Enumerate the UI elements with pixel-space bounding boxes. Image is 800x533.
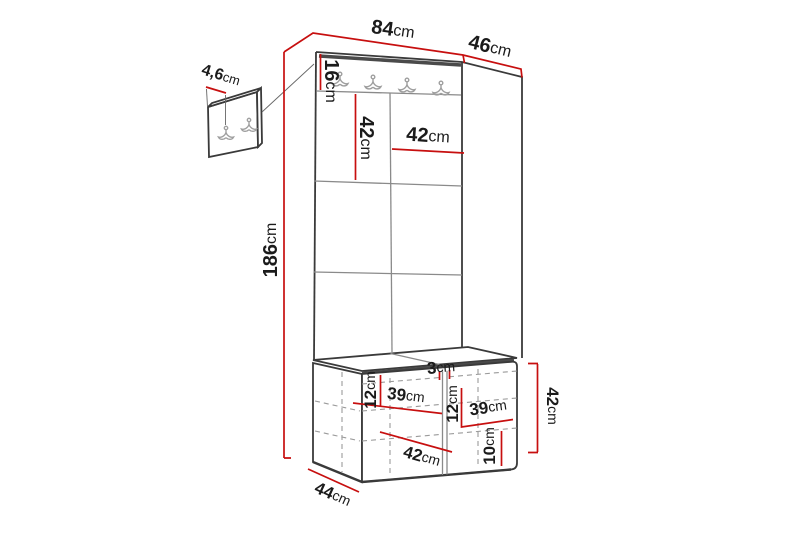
dim-line-panel-width (392, 149, 464, 153)
dim-label-total-width: 84cm (370, 16, 416, 44)
dim-label-shelf-left-height: 12cm (361, 371, 380, 409)
dim-label-wall-panel-thickness: 4,6cm (200, 61, 243, 89)
dim-label-panel-height: 42cm (355, 116, 377, 160)
double-coat-hook-icon (433, 81, 449, 95)
dim-label-plinth-height: 10cm (480, 427, 499, 465)
dim-label-bench-height: 42cm (544, 387, 563, 425)
dim-line-wall-panel-thickness (206, 87, 226, 93)
dim-line-bench-height (528, 364, 538, 453)
dim-label-total-height: 186cm (260, 223, 282, 278)
double-coat-hook-icon (399, 78, 415, 92)
diagram-canvas: 84cm 46cm 186cm 16cm 42cm 42cm 4,6cm 12c… (0, 0, 800, 533)
dim-label-bench-depth: 44cm (312, 478, 354, 511)
furniture-dimension-diagram: 84cm 46cm 186cm 16cm 42cm 42cm 4,6cm 12c… (0, 0, 800, 533)
callout-line (262, 64, 314, 112)
double-coat-hook-icon (365, 75, 381, 89)
wardrobe-frame (314, 52, 522, 360)
dim-label-rail-height: 16cm (320, 59, 342, 103)
dim-label-panel-width: 42cm (405, 124, 450, 149)
dim-label-shelf-right-height: 12cm (443, 385, 462, 423)
dim-line-total-height (284, 52, 291, 458)
